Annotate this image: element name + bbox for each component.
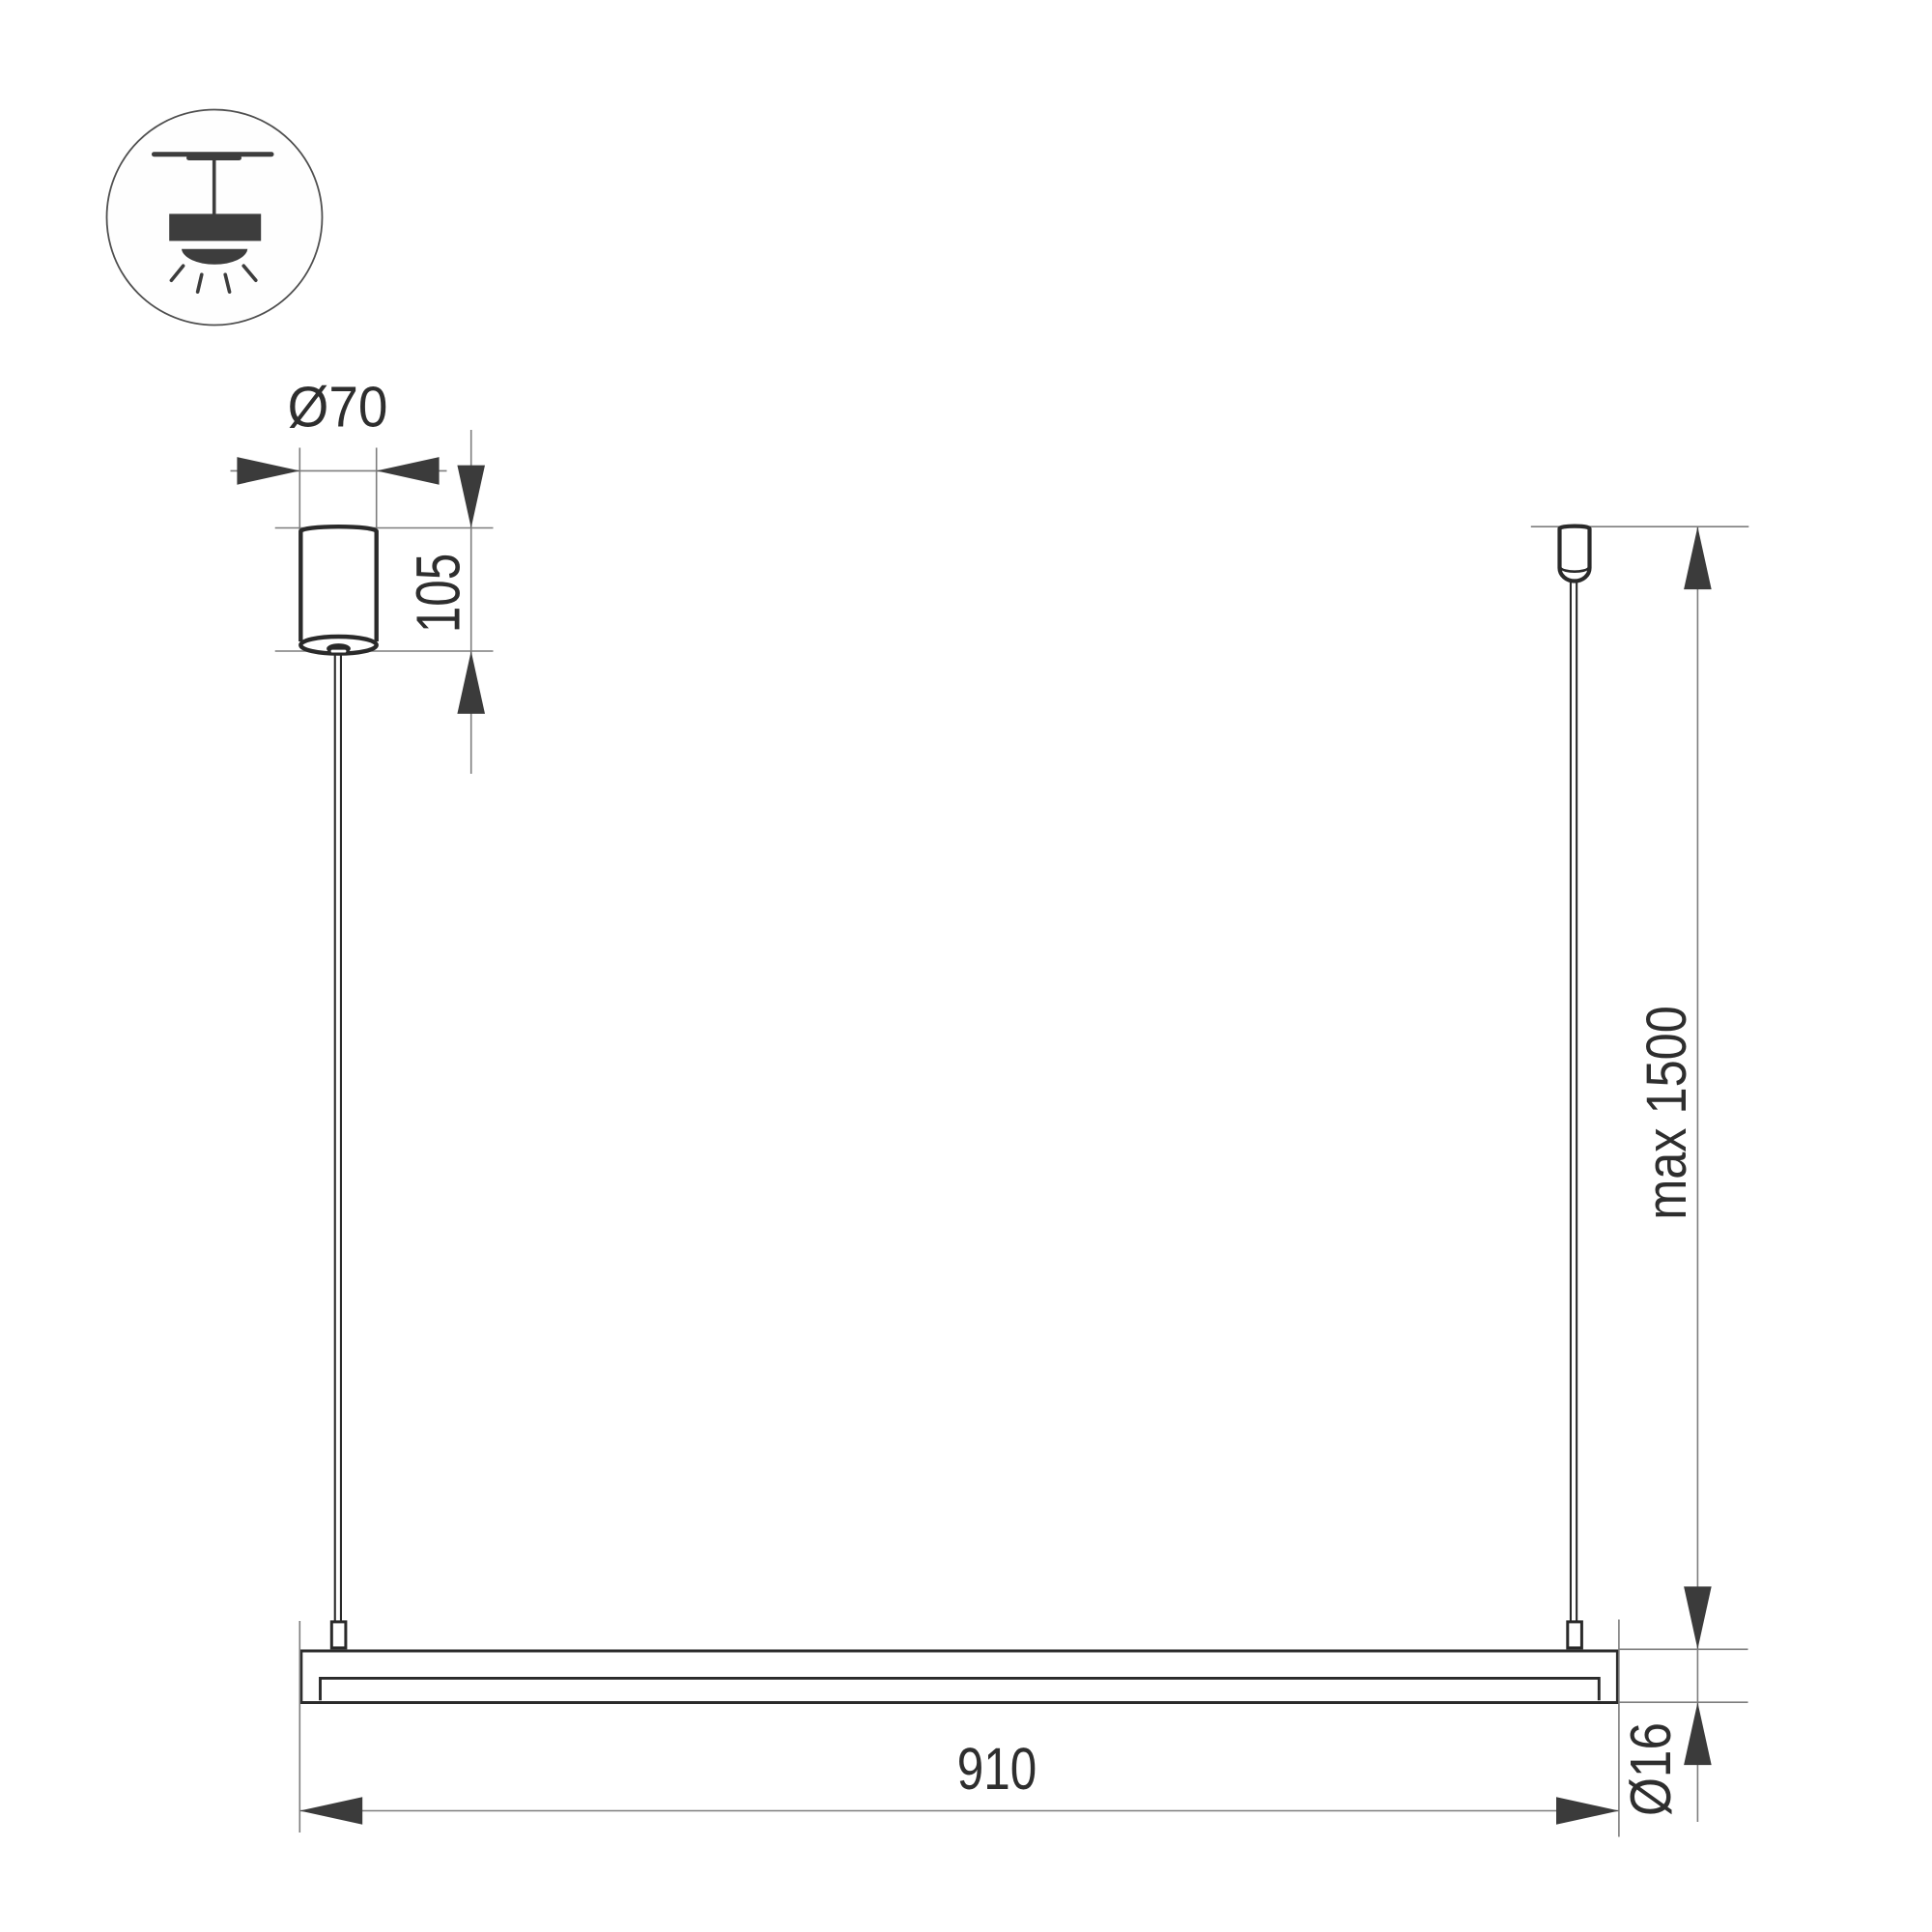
svg-text:Ø70: Ø70 <box>288 376 388 440</box>
svg-text:910: 910 <box>957 1736 1037 1802</box>
svg-text:105: 105 <box>404 554 473 633</box>
svg-text:max 1500: max 1500 <box>1635 1006 1698 1220</box>
svg-text:Ø16: Ø16 <box>1619 1722 1683 1816</box>
